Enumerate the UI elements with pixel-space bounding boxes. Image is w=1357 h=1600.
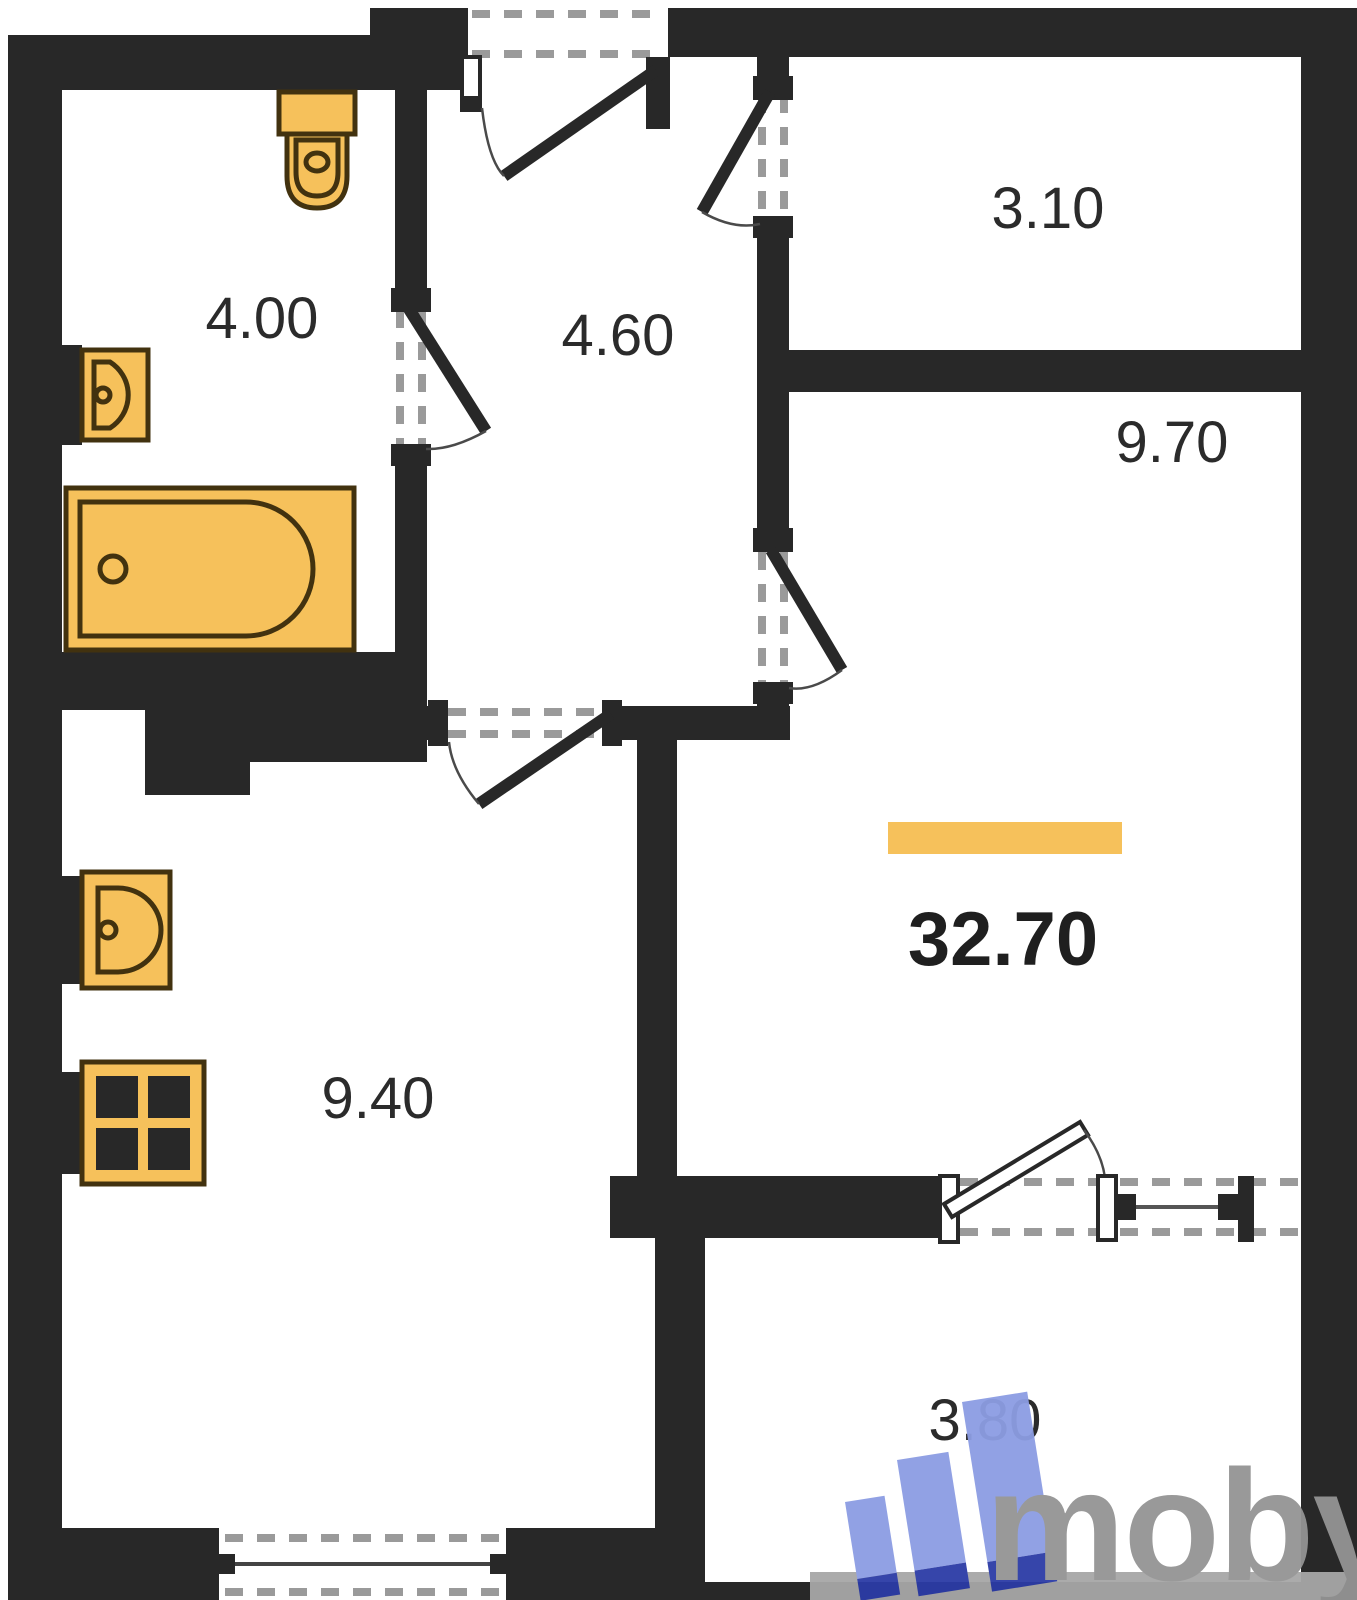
wall-bath-right-upper: [395, 90, 427, 305]
moby-logo-text: moby: [985, 1438, 1357, 1600]
wall-living-bottom: [610, 1176, 942, 1238]
balcony-door-post-right: [1098, 1176, 1116, 1240]
wall-left-outer: [8, 35, 62, 1600]
moby-logo: moby: [810, 1392, 1357, 1600]
balcony-door-window: [940, 1122, 1298, 1242]
wall-living-left-upper: [757, 392, 789, 548]
wall-divider: [637, 738, 677, 1178]
bathroom-area-label: 4.00: [206, 286, 319, 351]
wall-bath-bottom: [62, 652, 427, 710]
total-area-label: 32.70: [908, 897, 1098, 982]
wall-step-block: [145, 710, 250, 795]
storage-door: [702, 76, 793, 238]
toilet-icon: [279, 92, 355, 208]
entrance-door-leaf: [504, 70, 656, 176]
wall-balcony-left: [655, 1238, 705, 1600]
floor-plan: 4.00 4.60 3.10 9.70 32.70 9.40 3.80 moby: [0, 0, 1357, 1600]
balcony-window-post: [1238, 1176, 1254, 1242]
wall-kitchen-bottom-right: [522, 1528, 655, 1600]
storage-door-swing: [702, 212, 760, 226]
hallway-area-label: 4.60: [562, 303, 675, 368]
walls: [8, 8, 1357, 1600]
bathtub-icon: [66, 488, 354, 650]
living-door-swing: [789, 670, 842, 689]
kitchen-area-label: 9.40: [322, 1066, 435, 1131]
wall-top-step: [370, 8, 468, 90]
bathroom-door-swing: [426, 431, 486, 449]
stove-icon: [62, 1062, 204, 1184]
balcony-window-block-right: [1218, 1194, 1238, 1220]
living-door: [753, 528, 842, 704]
hall-kitchen-door-swing: [449, 742, 479, 804]
wall-kitchen-bottom-left: [8, 1528, 203, 1600]
storage-area-label: 3.10: [992, 176, 1105, 241]
living-area-label: 9.70: [1116, 410, 1229, 475]
kitchen-window: [203, 1528, 522, 1600]
wall-right-outer: [1301, 8, 1357, 1600]
bathroom-sink-icon: [62, 345, 148, 445]
hall-kitchen-door: [428, 700, 622, 804]
balcony-door-leaf: [944, 1122, 1088, 1217]
entrance-door: [460, 14, 670, 176]
total-area-highlight-bar: [888, 822, 1122, 854]
entrance-door-swing: [482, 108, 504, 176]
door-post: [462, 57, 480, 99]
bathroom-door: [391, 288, 486, 466]
wall-below-storage: [757, 350, 1305, 392]
wall-top-right: [668, 8, 1355, 57]
balcony-window-block-left: [1116, 1194, 1136, 1220]
kitchen-sink-icon: [62, 872, 170, 988]
hall-kitchen-door-leaf: [479, 714, 611, 804]
